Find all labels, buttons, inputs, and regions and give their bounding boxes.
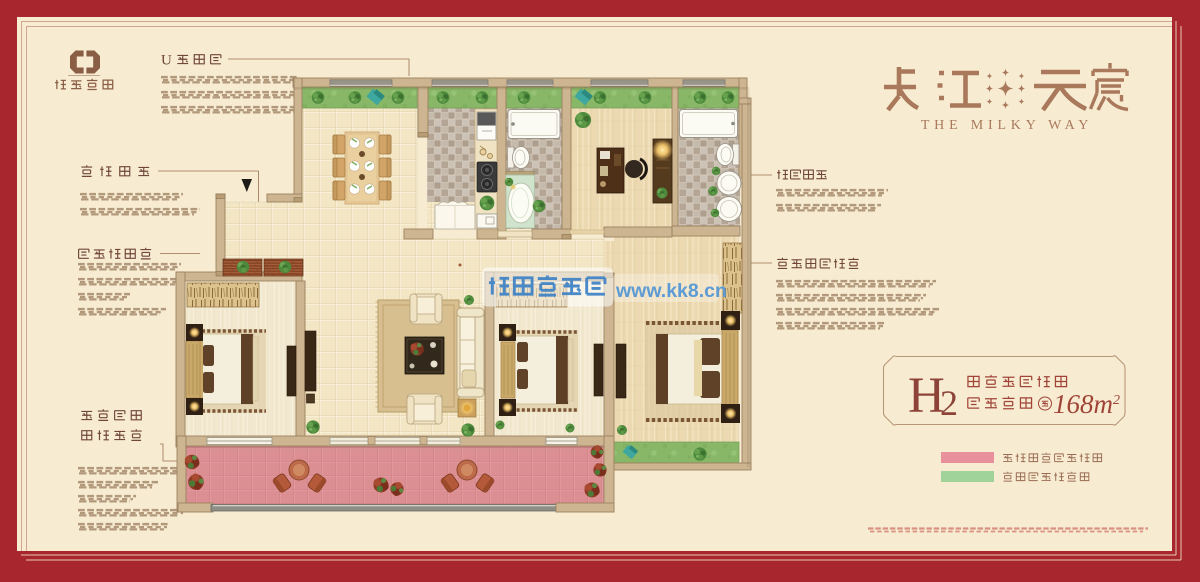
svg-text:U: U — [161, 53, 172, 69]
svg-text:168m2: 168m2 — [1053, 389, 1120, 419]
svg-text:www.kk8.cn: www.kk8.cn — [615, 280, 727, 302]
svg-text:THE MILKY WAY: THE MILKY WAY — [921, 118, 1093, 133]
svg-text:2: 2 — [940, 383, 958, 423]
